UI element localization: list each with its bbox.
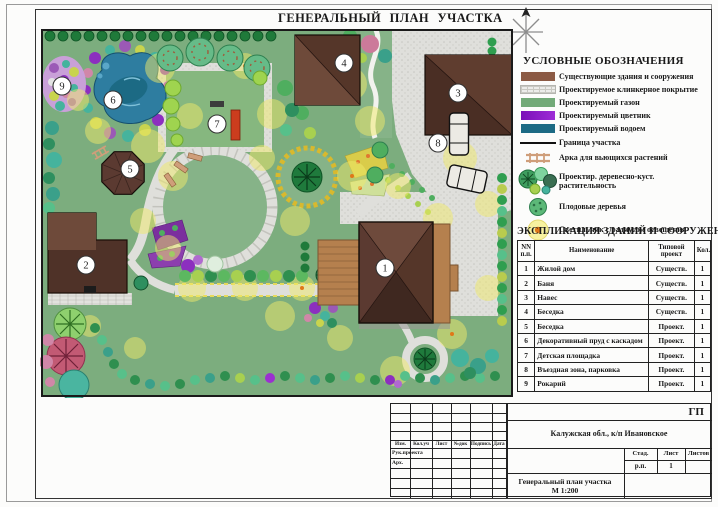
table-header-row: NN п.п. Наименование Типовой проект Кол.	[518, 241, 711, 262]
legend-item: Граница участка	[517, 137, 711, 148]
stamp-col-list: Лист	[432, 440, 451, 448]
stamp-role-label: Арх.	[392, 458, 432, 468]
legend-title: УСЛОВНЫЕ ОБОЗНАЧЕНИЯ	[523, 55, 711, 67]
fruit-tree-icon	[528, 197, 548, 217]
legend-item-label: Существующие здания и сооружения	[559, 72, 693, 81]
stamp-scale: М 1:200	[552, 486, 578, 495]
legend-item: Проектир. деревесно-куст. растительность	[517, 167, 711, 195]
stamp-col-koluch: Кол.уч	[410, 440, 432, 448]
explication: ЭКСПЛИКАЦИЯ ЗДАНИЙ И СООРУЖЕНИЙ NN п.п. …	[517, 226, 711, 392]
stamp-stage-label: Стад.	[624, 448, 657, 460]
stamp-sheets-label: Листов	[685, 448, 712, 460]
legend-item-label: Проектируемый газон	[559, 98, 640, 107]
col-header-nn: NN п.п.	[518, 241, 535, 262]
legend-item: Проектируемый цветник	[517, 110, 711, 121]
svg-text:7: 7	[214, 120, 219, 131]
table-row: 7Детская площадкаПроект.1	[518, 348, 711, 362]
svg-text:3: 3	[455, 89, 460, 100]
flowerbed-swatch-icon	[521, 111, 555, 120]
stamp-col-podpis: Подпись	[470, 440, 492, 448]
svg-text:6: 6	[110, 96, 115, 107]
marker-7: 7	[208, 115, 226, 133]
legend-item-label: Плодовые деревья	[559, 202, 626, 211]
table-row: 6Декоративный пруд с каскадомПроект.1	[518, 333, 711, 347]
legend-item: Проектируемое клинкерное покрытие	[517, 84, 711, 95]
table-row: 8Въездная зона, парковкаПроект.1	[518, 362, 711, 376]
stamp-col-ndok: №док	[451, 440, 470, 448]
col-header-name: Наименование	[535, 241, 649, 262]
table-row: 3НавесСуществ.1	[518, 290, 711, 304]
table-row: 2БаняСуществ.1	[518, 276, 711, 290]
marker-8: 8	[429, 134, 447, 152]
lawn-swatch-icon	[521, 98, 555, 107]
pond-swatch-icon	[521, 124, 555, 133]
legend-item-label: Граница участка	[559, 138, 620, 147]
site-plan-drawing: 1 2 3 4 5 6 7 8 9	[40, 28, 514, 398]
stamp-col-izm: Изм.	[391, 440, 410, 448]
marker-9: 9	[53, 77, 71, 95]
legend-item-label: Проектир. деревесно-куст. растительность	[559, 172, 669, 190]
marker-6: 6	[104, 91, 122, 109]
stamp-doc-title-cell: Генеральный план участка М 1:200	[506, 473, 624, 498]
svg-text:8: 8	[435, 139, 440, 150]
clinker-paving-swatch-icon	[520, 85, 556, 94]
table-row: 1Жилой домСуществ.1	[518, 262, 711, 276]
svg-text:9: 9	[59, 82, 64, 93]
svg-text:4: 4	[341, 59, 347, 70]
marker-1: 1	[376, 259, 394, 277]
legend: УСЛОВНЫЕ ОБОЗНАЧЕНИЯ Существующие здания…	[517, 55, 711, 243]
legend-item-label: Проектируемое клинкерное покрытие	[559, 85, 698, 94]
stamp-doc-code: ГП	[506, 404, 704, 420]
explication-title: ЭКСПЛИКАЦИЯ ЗДАНИЙ И СООРУЖЕНИЙ	[517, 226, 711, 237]
drawing-sheet: { "page": { "title": "ГЕНЕРАЛЬНЫЙ ПЛАН У…	[0, 0, 718, 507]
table-row: 9РокарийПроект.1	[518, 377, 711, 391]
page-title: ГЕНЕРАЛЬНЫЙ ПЛАН УЧАСТКА	[278, 11, 478, 26]
marker-3: 3	[449, 84, 467, 102]
col-header-qty: Кол.	[694, 241, 710, 262]
marker-2: 2	[77, 256, 95, 274]
marker-5: 5	[121, 160, 139, 178]
explication-table: NN п.п. Наименование Типовой проект Кол.…	[517, 240, 711, 392]
existing-buildings-swatch-icon	[521, 72, 555, 81]
boundary-line-icon	[520, 142, 556, 144]
legend-item: Плодовые деревья	[517, 197, 711, 217]
legend-item: Проектируемый водоем	[517, 123, 711, 134]
arch-icon	[524, 152, 552, 164]
svg-text:5: 5	[127, 165, 132, 176]
legend-item: Арка для вьющихся растений	[517, 151, 711, 165]
legend-item: Существующие здания и сооружения	[517, 71, 711, 82]
legend-item-label: Арка для вьющихся растений	[559, 153, 668, 162]
tree-cluster-icon	[518, 167, 558, 195]
table-row: 5БеседкаПроект.1	[518, 319, 711, 333]
stamp-col-data: Дата	[492, 440, 506, 448]
stamp-sheet-value: 1	[657, 460, 685, 473]
title-block: Изм. Кол.уч Лист №док Подпись Дата Рук.п…	[390, 403, 711, 497]
legend-item-label: Проектируемый водоем	[559, 124, 645, 133]
table-row: 4БеседкаСуществ.1	[518, 305, 711, 319]
stamp-location: Калужская обл., к/п Ивановское	[506, 420, 712, 448]
svg-text:1: 1	[382, 264, 387, 275]
stamp-stage-value: р.п.	[624, 460, 657, 473]
col-header-type: Типовой проект	[649, 241, 695, 262]
site-plan: 1 2 3 4 5 6 7 8 9	[40, 28, 514, 398]
legend-item: Проектируемый газон	[517, 97, 711, 108]
stamp-role-label: Рук.проекта	[392, 448, 432, 458]
stamp-sheet-label: Лист	[657, 448, 685, 460]
svg-text:2: 2	[83, 261, 88, 272]
legend-item-label: Проектируемый цветник	[559, 111, 651, 120]
marker-4: 4	[335, 54, 353, 72]
stamp-doc-title: Генеральный план участка	[519, 477, 612, 486]
